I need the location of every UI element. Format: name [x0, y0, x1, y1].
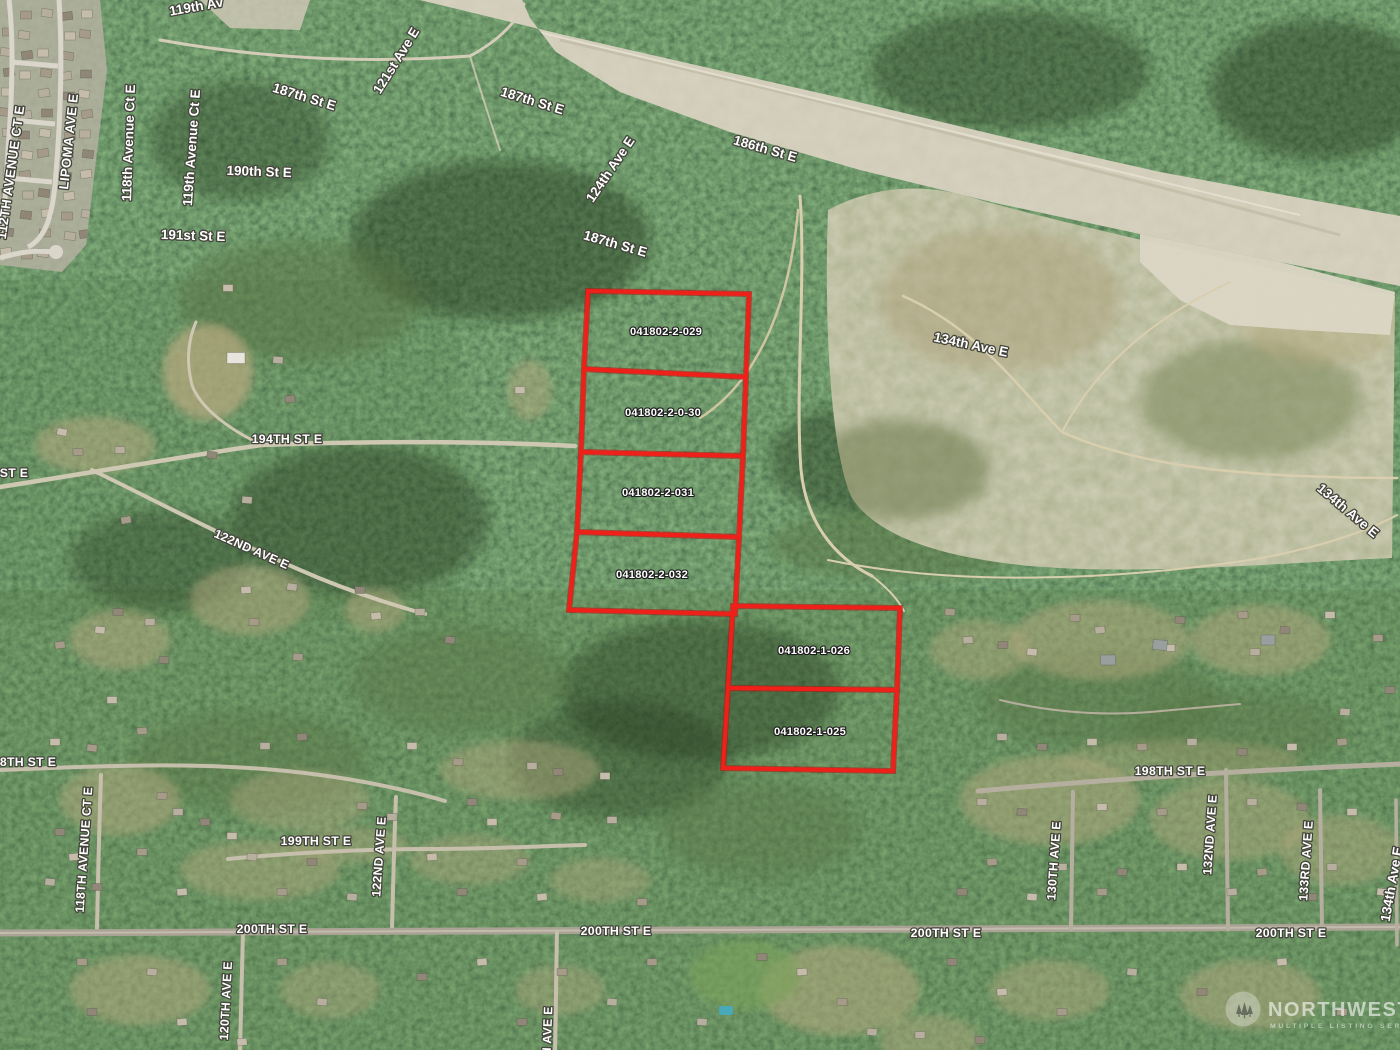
parcel-label: 041802-2-029	[630, 326, 702, 338]
parcel-label: 041802-2-032	[616, 569, 688, 581]
street-label-124th-ave-e-s: 124TH AVE E	[539, 1006, 556, 1050]
street-label-198th-st-e: 198TH ST E	[1135, 764, 1206, 778]
map-canvas: 041802-2-029 041802-2-0-30 041802-2-031 …	[0, 0, 1400, 1050]
parcel-label: 041802-1-026	[778, 645, 850, 657]
street-label-200th-st-e-3: 200TH ST E	[911, 926, 982, 940]
watermark-tagline: MULTIPLE LISTING SERVICE	[1270, 1023, 1400, 1030]
parcel-label: 041802-2-031	[622, 487, 694, 499]
image-grain	[0, 0, 1400, 1050]
street-label-200th-st-e-4: 200TH ST E	[1256, 926, 1327, 940]
street-label-199th-st-e: 199TH ST E	[281, 834, 352, 848]
street-label-200th-st-e-1: 200TH ST E	[237, 922, 308, 936]
street-label-st-e-partial: ST E	[0, 466, 28, 480]
street-label-190th-st-e: 190th St E	[226, 163, 292, 180]
watermark-name: NORTHWEST	[1268, 999, 1400, 1021]
parcel-label: 041802-2-0-30	[625, 407, 701, 419]
parcel-label: 041802-1-025	[774, 726, 846, 738]
street-label-8th-st-e-partial: 8TH ST E	[0, 755, 56, 769]
street-label-191st-st-e: 191st St E	[161, 227, 226, 244]
satellite-map: 041802-2-029 041802-2-0-30 041802-2-031 …	[0, 0, 1400, 1050]
street-label-200th-st-e-2: 200TH ST E	[581, 924, 652, 938]
street-label-194th-st-e: 194TH ST E	[252, 432, 323, 446]
